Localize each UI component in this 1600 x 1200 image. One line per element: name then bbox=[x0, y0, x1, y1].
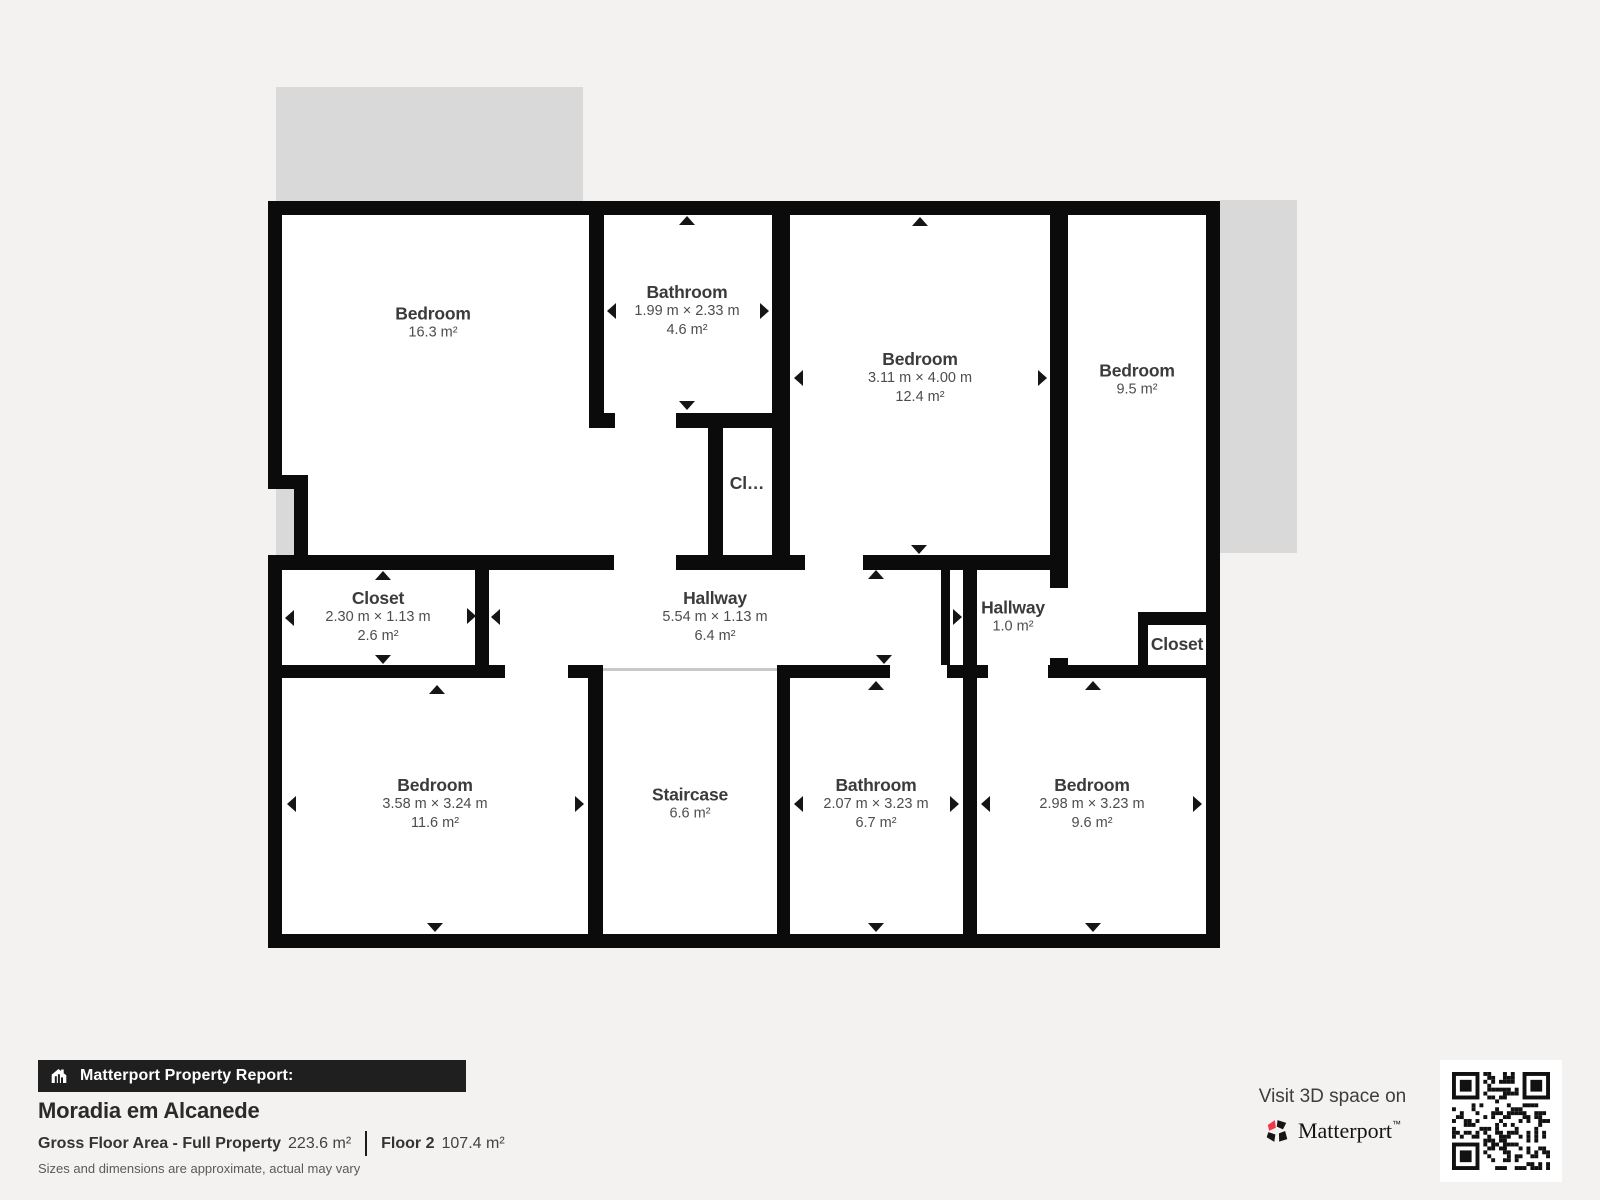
stats-divider bbox=[365, 1131, 367, 1156]
room-dims: 2.30 m × 1.13 m bbox=[325, 608, 430, 627]
qr-code bbox=[1452, 1072, 1550, 1170]
room-label-bedroom-3: Bedroom 9.5 m² bbox=[1099, 361, 1174, 400]
room-label-closet-1: Closet 2.30 m × 1.13 m 2.6 m² bbox=[325, 588, 430, 646]
room-name: Bedroom bbox=[882, 349, 957, 369]
area-stats: Gross Floor Area - Full Property 223.6 m… bbox=[38, 1131, 505, 1156]
room-name: Closet bbox=[1151, 634, 1203, 654]
floor-area-value: 107.4 m² bbox=[442, 1135, 505, 1153]
report-bar: Matterport Property Report: bbox=[38, 1060, 466, 1092]
room-area: 9.6 m² bbox=[1071, 814, 1112, 833]
room-dims: 1.99 m × 2.33 m bbox=[634, 302, 739, 321]
floor-plan: Bedroom 16.3 m² Bathroom 1.99 m × 2.33 m… bbox=[0, 0, 1600, 1200]
staircase-threshold-line bbox=[603, 668, 777, 671]
room-name: Staircase bbox=[652, 785, 728, 805]
room-label-bedroom-2: Bedroom 3.11 m × 4.00 m 12.4 m² bbox=[868, 349, 972, 407]
property-title: Moradia em Alcanede bbox=[38, 1098, 260, 1124]
room-dims: 3.58 m × 3.24 m bbox=[382, 795, 487, 814]
room-area: 11.6 m² bbox=[411, 814, 459, 833]
room-label-closet-2: Closet bbox=[1151, 634, 1203, 654]
qr-card[interactable] bbox=[1440, 1060, 1562, 1182]
room-area: 6.7 m² bbox=[855, 814, 896, 833]
gross-area-label: Gross Floor Area - Full Property bbox=[38, 1135, 281, 1153]
floor-label: Floor 2 bbox=[381, 1135, 434, 1153]
room-name: Cl… bbox=[730, 473, 764, 493]
room-area: 12.4 m² bbox=[895, 388, 944, 407]
room-name: Bathroom bbox=[835, 775, 916, 795]
room-area: 2.6 m² bbox=[357, 627, 398, 646]
visit-3d-cta: Visit 3D space on Matterport ™ bbox=[1235, 1086, 1430, 1144]
room-dims: 5.54 m × 1.13 m bbox=[662, 608, 767, 627]
house-bars-icon bbox=[50, 1068, 68, 1084]
room-area: 4.6 m² bbox=[666, 321, 707, 340]
room-name: Bathroom bbox=[646, 282, 727, 302]
underfloor-strip bbox=[276, 489, 294, 557]
room-area: 16.3 m² bbox=[408, 324, 457, 343]
room-label-bedroom-1: Bedroom 16.3 m² bbox=[395, 304, 470, 343]
visit-line: Visit 3D space on bbox=[1259, 1086, 1407, 1108]
room-dims: 2.98 m × 3.23 m bbox=[1039, 795, 1144, 814]
room-label-bedroom-5: Bedroom 2.98 m × 3.23 m 9.6 m² bbox=[1039, 775, 1144, 833]
room-name: Bedroom bbox=[1054, 775, 1129, 795]
room-label-bedroom-4: Bedroom 3.58 m × 3.24 m 11.6 m² bbox=[382, 775, 487, 833]
room-label-staircase: Staircase 6.6 m² bbox=[652, 785, 728, 824]
page: Bedroom 16.3 m² Bathroom 1.99 m × 2.33 m… bbox=[0, 0, 1600, 1200]
room-area: 1.0 m² bbox=[992, 618, 1033, 637]
room-label-bathroom-1: Bathroom 1.99 m × 2.33 m 4.6 m² bbox=[634, 282, 739, 340]
room-area: 9.5 m² bbox=[1116, 381, 1157, 400]
room-name: Hallway bbox=[981, 598, 1045, 618]
room-area: 6.6 m² bbox=[669, 805, 710, 824]
floor-plan-drawing bbox=[0, 0, 1600, 1200]
trademark-mark: ™ bbox=[1392, 1119, 1401, 1129]
room-label-bathroom-2: Bathroom 2.07 m × 3.23 m 6.7 m² bbox=[823, 775, 928, 833]
room-dims: 3.11 m × 4.00 m bbox=[868, 369, 972, 388]
report-bar-label: Matterport Property Report: bbox=[80, 1067, 293, 1085]
room-name: Bedroom bbox=[397, 775, 472, 795]
room-name: Bedroom bbox=[395, 304, 470, 324]
room-label-hallway-2: Hallway 1.0 m² bbox=[981, 598, 1045, 637]
matterport-brand: Matterport ™ bbox=[1264, 1118, 1401, 1144]
room-name: Closet bbox=[352, 588, 404, 608]
matterport-pinwheel-logo bbox=[1264, 1118, 1290, 1144]
disclaimer-text: Sizes and dimensions are approximate, ac… bbox=[38, 1161, 360, 1176]
room-label-hallway-1: Hallway 5.54 m × 1.13 m 6.4 m² bbox=[662, 588, 767, 646]
room-area: 6.4 m² bbox=[694, 627, 735, 646]
room-name: Hallway bbox=[683, 588, 747, 608]
room-label-closet-truncated: Cl… bbox=[730, 473, 764, 493]
gross-area-value: 223.6 m² bbox=[288, 1135, 351, 1153]
matterport-wordmark: Matterport bbox=[1298, 1118, 1392, 1144]
room-name: Bedroom bbox=[1099, 361, 1174, 381]
room-dims: 2.07 m × 3.23 m bbox=[823, 795, 928, 814]
